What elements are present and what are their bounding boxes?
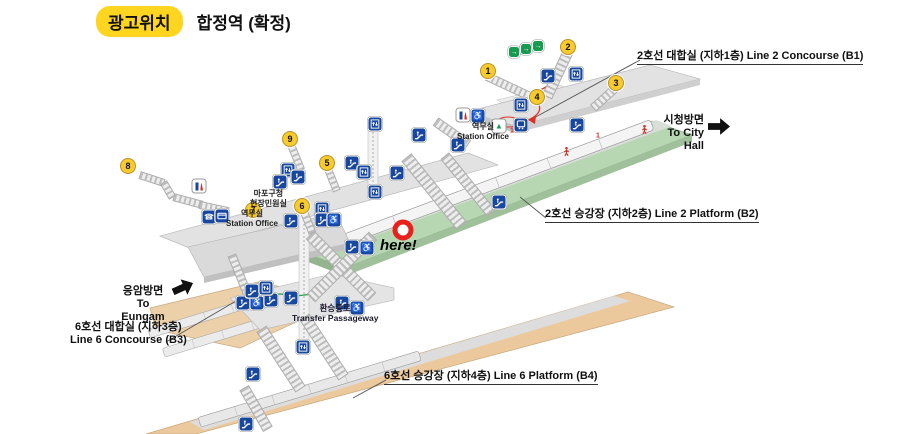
escalator-icon bbox=[247, 368, 260, 381]
to-eungam-ko: 응암방면 bbox=[114, 285, 172, 298]
wheelchair-icon: ♿ bbox=[251, 297, 264, 310]
exit-icon: → bbox=[509, 47, 519, 57]
ad-location-marker-5: 5 bbox=[319, 155, 335, 171]
line6-platform-label: 6호선 승강장 (지하4층) Line 6 Platform (B4) bbox=[384, 367, 598, 385]
escalator-icon bbox=[391, 167, 404, 180]
ad-location-marker-4: 4 bbox=[529, 89, 545, 105]
wheelchair-icon: ♿ bbox=[472, 110, 485, 123]
line6-concourse-label: 6호선 대합실 (지하3층)Line 6 Concourse (B3) bbox=[70, 321, 187, 347]
escalator-icon bbox=[292, 171, 305, 184]
escalator-icon bbox=[413, 129, 426, 142]
escalator-icon bbox=[285, 215, 298, 228]
exit-icon: → bbox=[533, 41, 543, 51]
station-office-mezz-label: 역무실Station Office bbox=[226, 209, 278, 228]
restroom-icon bbox=[457, 109, 470, 122]
exit-icon: → bbox=[521, 44, 531, 54]
line2-platform-label: 2호선 승강장 (지하2층) Line 2 Platform (B2) bbox=[545, 205, 759, 223]
elevator-icon bbox=[297, 341, 310, 354]
red-person-icon bbox=[638, 123, 651, 136]
escalator-icon bbox=[542, 70, 555, 83]
to-city-hall-ko: 시청방면 bbox=[652, 114, 704, 127]
elevator-icon bbox=[515, 99, 528, 112]
escalator-icon bbox=[265, 294, 278, 307]
station-diagram: →→→♿▲☎♿♿♿♿111234567892호선 대합실 (지하1층) Line… bbox=[0, 0, 900, 434]
red-sign-icon: 1 bbox=[592, 130, 605, 143]
elevator-icon bbox=[260, 282, 273, 295]
mapo-label: 마포구청현장민원실 bbox=[250, 189, 287, 208]
escalator-icon bbox=[237, 297, 250, 310]
phone-icon: ☎ bbox=[203, 211, 216, 224]
to-eungam-sign: 응암방면 To Eungam bbox=[114, 285, 172, 324]
elevator-icon bbox=[570, 68, 583, 81]
red-person-icon bbox=[560, 145, 573, 158]
line6-train bbox=[198, 351, 421, 427]
escalator-icon bbox=[274, 176, 287, 189]
ad-location-marker-6: 6 bbox=[294, 198, 310, 214]
wheelchair-icon: ♿ bbox=[328, 214, 341, 227]
elevator-icon bbox=[369, 118, 382, 131]
elevator-icon bbox=[369, 186, 382, 199]
ad-location-marker-1: 1 bbox=[480, 63, 496, 79]
ad-location-marker-2: 2 bbox=[560, 39, 576, 55]
ad-location-marker-9: 9 bbox=[282, 131, 298, 147]
wheelchair-icon: ♿ bbox=[361, 242, 374, 255]
escalator-icon bbox=[246, 285, 259, 298]
escalator-icon bbox=[346, 241, 359, 254]
ad-location-marker-3: 3 bbox=[608, 75, 624, 91]
escalator-icon bbox=[571, 119, 584, 132]
elevator-icon bbox=[358, 166, 371, 179]
line2-concourse-label: 2호선 대합실 (지하1층) Line 2 Concourse (B1) bbox=[637, 47, 863, 65]
restroom-icon bbox=[193, 180, 206, 193]
station-map-page: 광고위치 합정역 (확정) bbox=[0, 0, 900, 434]
here-label: here! bbox=[380, 237, 417, 254]
to-eungam-en: To Eungam bbox=[114, 298, 172, 324]
to-city-hall-sign: 시청방면 To City Hall bbox=[652, 114, 704, 153]
transfer-label: 환승통로Transfer Passageway bbox=[292, 303, 378, 323]
escalator-icon bbox=[240, 418, 253, 431]
station-office-b1-label: 역무실Station Office bbox=[457, 122, 509, 141]
ad-location-marker-8: 8 bbox=[120, 158, 136, 174]
escalator-icon bbox=[493, 196, 506, 209]
to-city-hall-en: To City Hall bbox=[652, 127, 704, 153]
